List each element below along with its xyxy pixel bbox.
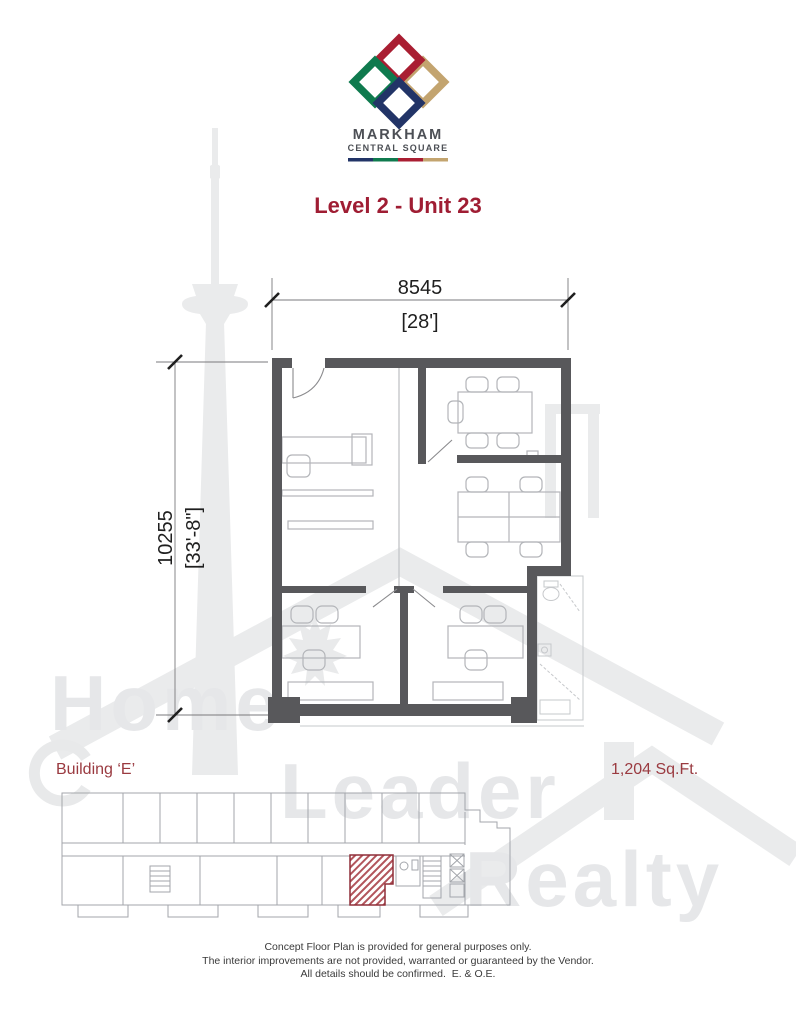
disclaimer-line-2: The interior improvements are not provid… [0,955,796,969]
brand-name: MARKHAM [0,127,796,143]
brand-color-bar [348,158,448,162]
key-plan-unit-highlight [350,855,393,905]
logo-diamond-navy [378,82,420,124]
area-label: 1,204 Sq.Ft. [611,761,698,779]
brand-tagline: CENTRAL SQUARE [0,143,796,153]
page-title: Level 2 - Unit 23 [0,193,796,219]
width-dimension-metric: 8545 [398,277,443,299]
building-label: Building ‘E’ [56,761,135,779]
watermark-layer: Home Leader Realty [34,128,796,923]
depth-dimension-metric: 10255 [155,510,177,566]
disclaimer: Concept Floor Plan is provided for gener… [0,941,796,982]
width-dimension-imperial: [28'] [401,311,438,333]
disclaimer-line-3: All details should be confirmed. E. & O.… [0,968,796,982]
disclaimer-line-1: Concept Floor Plan is provided for gener… [0,941,796,955]
page-art: Home Leader Realty [0,0,796,1030]
key-plan-stair-1 [150,866,170,892]
depth-dimension-imperial: [33'-8"] [183,507,205,569]
watermark-word-home: Home [50,659,283,747]
floor-plan-page: Home Leader Realty [0,0,796,1030]
watermark-word-realty: Realty [465,835,723,923]
watermark-word-leader: Leader [280,747,560,835]
